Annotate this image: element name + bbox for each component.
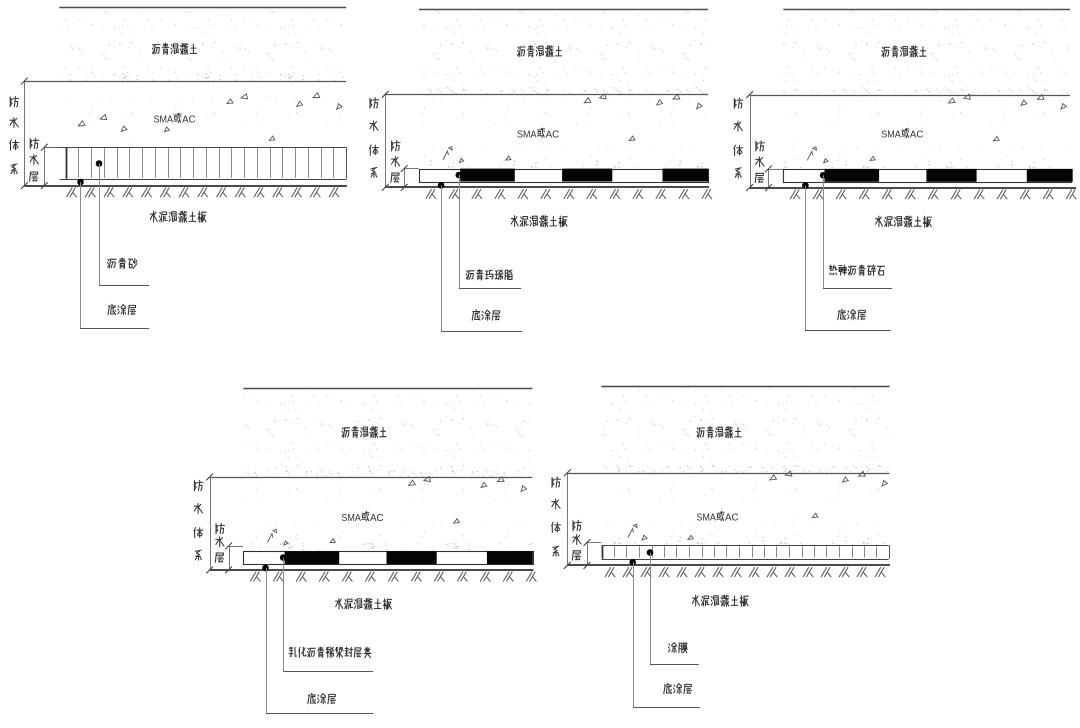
svg-text:SMA: SMA xyxy=(154,114,174,126)
svg-text:AC: AC xyxy=(910,129,924,141)
svg-text:SMA: SMA xyxy=(696,512,716,524)
svg-text:SMA: SMA xyxy=(341,512,361,524)
svg-text:AC: AC xyxy=(370,512,384,524)
svg-text:SMA: SMA xyxy=(517,128,537,140)
svg-text:AC: AC xyxy=(546,128,560,140)
svg-text:AC: AC xyxy=(725,512,739,524)
svg-text:AC: AC xyxy=(182,114,196,126)
svg-text:SMA: SMA xyxy=(881,129,901,141)
